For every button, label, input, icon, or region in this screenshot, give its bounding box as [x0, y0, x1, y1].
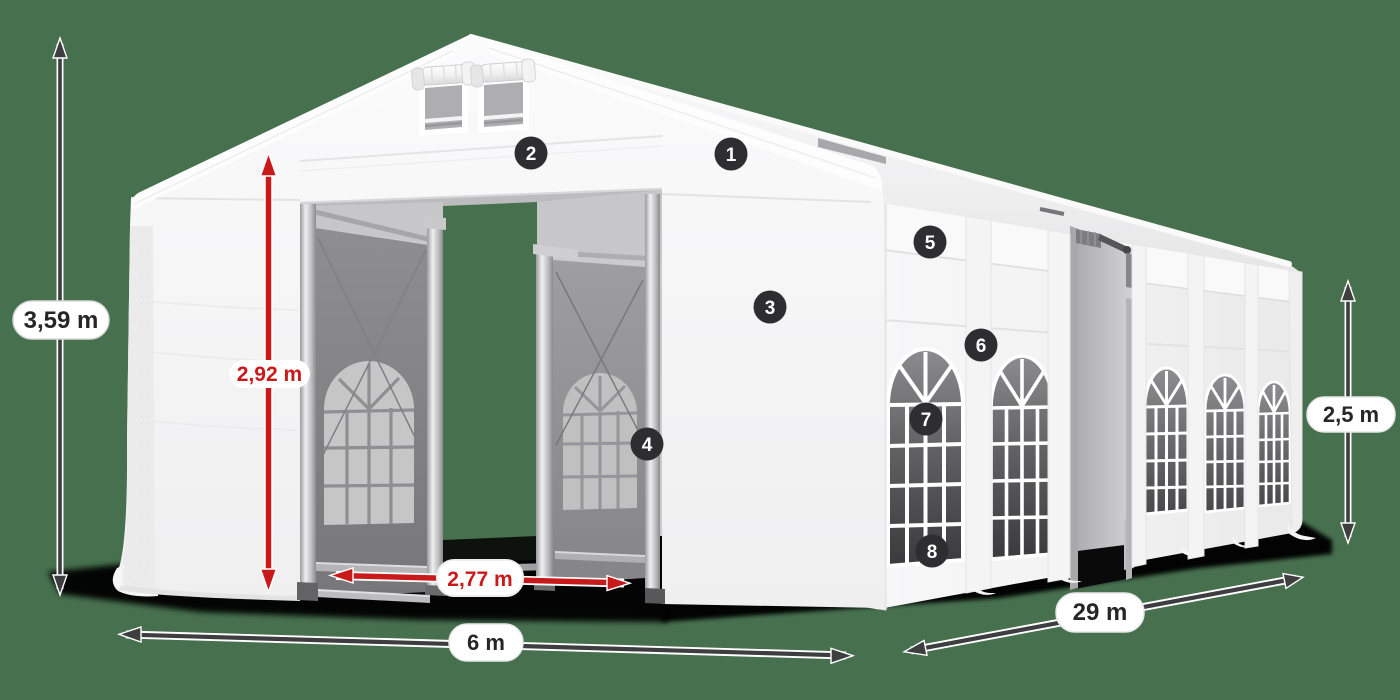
svg-text:2: 2 [526, 144, 537, 165]
svg-text:2,5 m: 2,5 m [1323, 402, 1379, 427]
svg-text:2,92 m: 2,92 m [237, 363, 302, 386]
svg-text:3: 3 [765, 298, 776, 319]
svg-text:8: 8 [927, 542, 938, 563]
svg-text:1: 1 [726, 145, 737, 166]
svg-text:7: 7 [921, 410, 932, 431]
svg-text:6: 6 [976, 336, 987, 357]
svg-text:6 m: 6 m [467, 630, 505, 655]
svg-text:29 m: 29 m [1073, 599, 1128, 626]
svg-text:5: 5 [925, 233, 936, 254]
svg-text:3,59 m: 3,59 m [24, 307, 99, 334]
svg-text:2,77 m: 2,77 m [447, 568, 512, 591]
svg-text:4: 4 [642, 435, 653, 456]
